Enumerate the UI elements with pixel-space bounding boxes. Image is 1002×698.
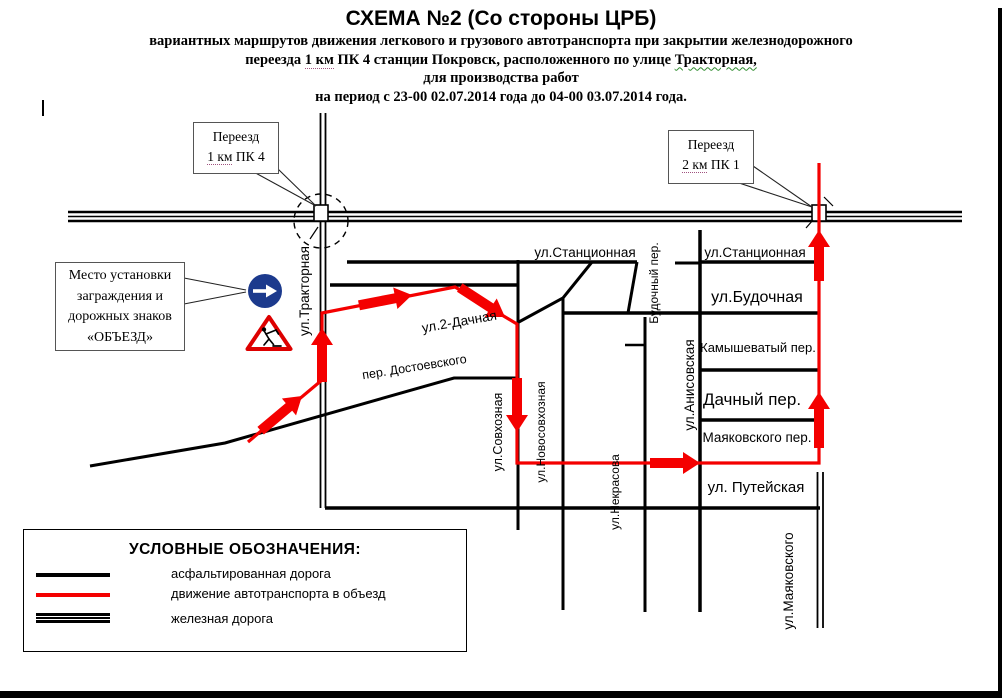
- roadworks-sign-icon: [248, 317, 291, 349]
- street-label-2-dachnaya: ул.2-Дачная: [421, 308, 498, 336]
- callout-barrier-line1: Место установки: [56, 266, 184, 287]
- route-arrow-up-crossing: [808, 230, 830, 281]
- route-arrow-up-traktornaya: [311, 328, 333, 382]
- legend-railway-swatch-mid: [36, 617, 110, 619]
- street-label-anisovskaya: ул.Анисовская: [682, 339, 697, 430]
- page-border-bottom: [0, 691, 1002, 698]
- street-label-kamyshevatyy: Камышеватый пер.: [700, 340, 816, 355]
- street-label-stantsionnaya-left: ул.Станционная: [534, 245, 635, 260]
- callout-crossing-1km: Переезд 1 км ПК 4: [193, 122, 279, 174]
- legend-asphalt-road-label: асфальтированная дорога: [171, 566, 331, 581]
- legend-railway-swatch-top: [36, 613, 110, 616]
- legend-railway-label: железная дорога: [171, 611, 273, 626]
- crossing-1km-square: [314, 205, 328, 221]
- legend-box: УСЛОВНЫЕ ОБОЗНАЧЕНИЯ: асфальтированная д…: [23, 529, 467, 652]
- street-label-budochnyy-per: Будочный пер.: [647, 242, 661, 323]
- route-arrow-down-sovkhoznaya: [506, 378, 528, 432]
- street-label-mayakovskogo-per: Маяковского пер.: [702, 430, 811, 445]
- route-arrow-diagonal-up: [254, 388, 310, 440]
- legend-title: УСЛОВНЫЕ ОБОЗНАЧЕНИЯ:: [24, 541, 466, 559]
- callout-crossing-2km-km: 2 км: [682, 157, 707, 173]
- text-cursor-mark: [42, 100, 44, 116]
- callout-barrier-line3: дорожных знаков: [56, 307, 184, 328]
- street-label-stantsionnaya-right: ул.Станционная: [704, 245, 805, 260]
- blue-direction-sign-icon: [248, 274, 282, 308]
- callout-crossing-2km-pk: ПК 1: [707, 157, 739, 172]
- route-arrow-right-dachnaya: [357, 284, 414, 316]
- callout-crossing-2km-line2: 2 км ПК 1: [669, 155, 753, 175]
- street-label-novosovkhoznaya: ул.Новосовхозная: [534, 381, 548, 482]
- callout-crossing-2km: Переезд 2 км ПК 1: [668, 130, 754, 184]
- callout-crossing-1km-line2: 1 км ПК 4: [194, 147, 278, 167]
- crossing-1km-tick: [310, 227, 318, 239]
- callout-crossing-1km-pk: ПК 4: [232, 149, 264, 164]
- callout-barrier-line2: заграждения и: [56, 287, 184, 308]
- callout-crossing-1km-km: 1 км: [207, 149, 232, 165]
- callout-barrier-place: Место установки заграждения и дорожных з…: [55, 262, 185, 351]
- street-label-mayakovskogo-ul: ул.Маяковского: [781, 532, 796, 629]
- callout-crossing-2km-line1: Переезд: [669, 135, 753, 155]
- scheme-page: СХЕМА №2 (Со стороны ЦРБ) вариантных мар…: [0, 0, 1002, 698]
- railway: [68, 212, 962, 221]
- road-dostoevskogo: [90, 378, 517, 466]
- road-slant-east: [628, 262, 637, 313]
- street-label-nekrasova: ул.Некрасова: [608, 454, 622, 530]
- legend-detour-route-swatch: [36, 593, 110, 597]
- route-arrow-right-puteyskaya: [650, 452, 700, 474]
- legend-asphalt-road-swatch: [36, 573, 110, 577]
- street-label-traktornaya: ул.Тракторная: [297, 246, 312, 336]
- street-label-puteyskaya: ул. Путейская: [708, 479, 805, 496]
- page-border-right: [998, 8, 1002, 698]
- legend-railway-swatch-bottom: [36, 620, 110, 623]
- callout-crossing-1km-line1: Переезд: [194, 127, 278, 147]
- street-label-budochnaya: ул.Будочная: [711, 289, 803, 306]
- street-label-dachnyy-per: Дачный пер.: [703, 390, 801, 409]
- legend-detour-route-label: движение автотранспорта в объезд: [171, 586, 386, 601]
- street-label-sovkhoznaya: ул.Совхозная: [491, 393, 505, 472]
- callout-barrier-line4: «ОБЪЕЗД»: [56, 328, 184, 349]
